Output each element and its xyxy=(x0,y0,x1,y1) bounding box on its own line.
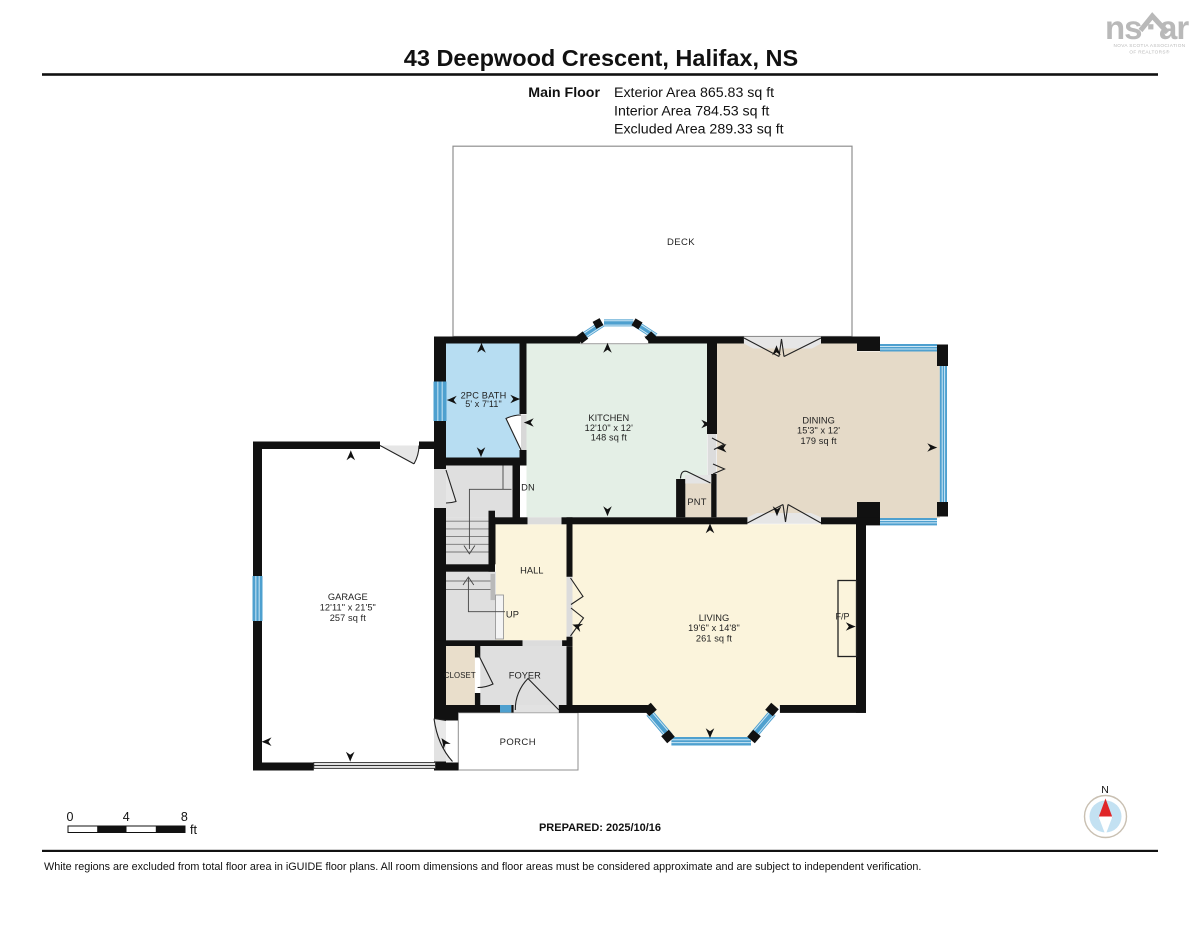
svg-text:FOYER: FOYER xyxy=(509,670,541,680)
svg-text:Main Floor: Main Floor xyxy=(528,85,600,101)
svg-text:Interior Area 784.53 sq ft: Interior Area 784.53 sq ft xyxy=(614,103,769,119)
svg-text:KITCHEN: KITCHEN xyxy=(588,413,629,423)
svg-text:DN: DN xyxy=(521,482,535,492)
svg-text:261 sq ft: 261 sq ft xyxy=(696,634,732,644)
svg-text:19'6" x 14'8": 19'6" x 14'8" xyxy=(688,623,740,633)
svg-text:PNT: PNT xyxy=(687,497,706,507)
svg-text:12'11" x 21'5": 12'11" x 21'5" xyxy=(320,603,376,613)
svg-text:148 sq ft: 148 sq ft xyxy=(591,433,627,443)
svg-text:DECK: DECK xyxy=(667,237,695,248)
svg-text:PORCH: PORCH xyxy=(500,737,536,748)
svg-text:CLOSET: CLOSET xyxy=(444,671,476,680)
svg-text:12'10" x 12': 12'10" x 12' xyxy=(585,423,633,433)
svg-text:N: N xyxy=(1101,784,1109,796)
svg-text:Excluded Area 289.33 sq ft: Excluded Area 289.33 sq ft xyxy=(614,122,784,138)
svg-text:8: 8 xyxy=(181,810,188,824)
svg-text:F/P: F/P xyxy=(835,611,849,621)
svg-text:DINING: DINING xyxy=(802,415,835,425)
svg-text:LIVING: LIVING xyxy=(699,613,729,623)
svg-text:Exterior Area 865.83 sq ft: Exterior Area 865.83 sq ft xyxy=(614,85,774,101)
svg-text:OF REALTORS®: OF REALTORS® xyxy=(1129,49,1169,55)
svg-text:179 sq ft: 179 sq ft xyxy=(801,436,837,446)
svg-text:ft: ft xyxy=(190,823,197,837)
svg-text:GARAGE: GARAGE xyxy=(328,592,368,602)
svg-text:4: 4 xyxy=(123,810,130,824)
svg-text:ar: ar xyxy=(1159,9,1189,46)
svg-text:5' x 7'11": 5' x 7'11" xyxy=(465,399,502,409)
svg-text:43 Deepwood Crescent, Halifax,: 43 Deepwood Crescent, Halifax, NS xyxy=(404,45,798,71)
svg-text:257 sq ft: 257 sq ft xyxy=(330,613,366,623)
svg-text:PREPARED: 2025/10/16: PREPARED: 2025/10/16 xyxy=(539,822,661,834)
svg-text:15'3" x 12': 15'3" x 12' xyxy=(797,426,840,436)
svg-text:HALL: HALL xyxy=(520,565,543,575)
svg-text:NOVA SCOTIA ASSOCIATION: NOVA SCOTIA ASSOCIATION xyxy=(1114,43,1186,48)
svg-text:0: 0 xyxy=(67,810,74,824)
svg-text:UP: UP xyxy=(506,609,519,619)
svg-text:White regions are excluded fro: White regions are excluded from total fl… xyxy=(44,861,921,873)
svg-text:ns: ns xyxy=(1105,9,1142,46)
